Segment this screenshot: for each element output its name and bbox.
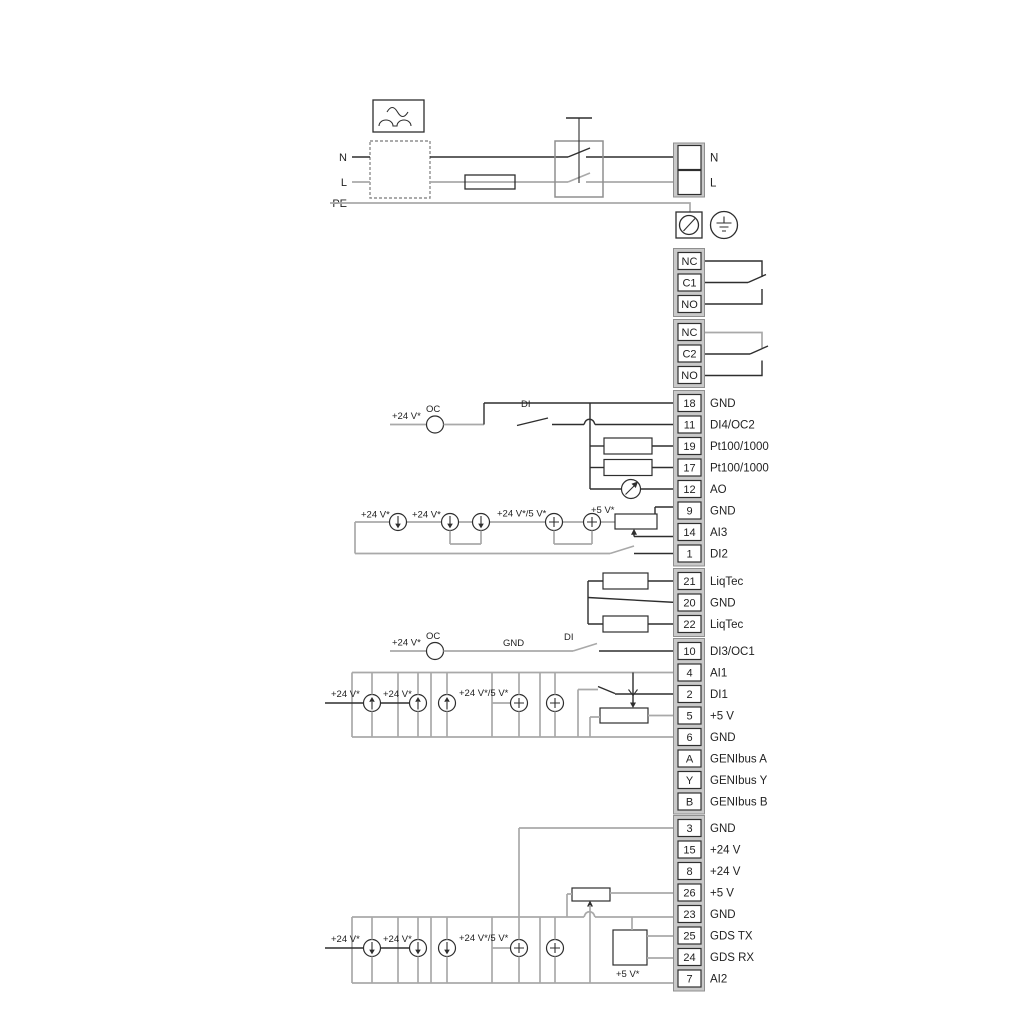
terminal-17-number: 17	[683, 462, 695, 474]
terminal-11-label: DI4/OC2	[710, 420, 755, 432]
terminal-1-label: DI2	[710, 549, 728, 561]
terminal-23-number: 23	[683, 909, 695, 921]
terminal-25-number: 25	[683, 930, 695, 942]
terminal-C2-number: C2	[682, 348, 696, 360]
terminal-10-number: 10	[683, 646, 695, 658]
terminal-8-label: +24 V	[710, 866, 741, 878]
io-block-1-terminal-block: 18GND11DI4/OC219Pt100/100017Pt100/100012…	[674, 391, 769, 567]
terminal-9-number: 9	[686, 505, 692, 517]
relay2-blade	[750, 346, 768, 354]
plus24-label: +24 V*	[383, 689, 412, 700]
plus24-5-label: +24 V*/5 V*	[497, 509, 547, 520]
relay-1-terminal-block: NCC1NO	[674, 249, 705, 317]
terminal-19-number: 19	[683, 441, 695, 453]
earth-icon	[711, 212, 738, 239]
terminal-2-label: DI1	[710, 689, 728, 701]
liqtec-resistor-1	[603, 573, 648, 589]
potentiometer	[572, 888, 610, 901]
terminal-26-number: 26	[683, 887, 695, 899]
l-label-left: L	[341, 177, 347, 189]
terminal-n	[678, 146, 701, 170]
di3-switch-blade	[573, 644, 597, 652]
io-block-3-terminal-block: 3GND15+24 V8+24 V26+5 V23GND25GDS TX24GD…	[674, 816, 755, 992]
plus5-label: +5 V*	[616, 969, 640, 980]
terminal-6-number: 6	[686, 732, 692, 744]
plus24-5-label: +24 V*/5 V*	[459, 688, 509, 699]
liqtec-wiring	[588, 573, 677, 632]
terminal-18-label: GND	[710, 398, 736, 410]
di-label: DI	[564, 632, 574, 643]
terminal-21-number: 21	[683, 576, 695, 588]
di1-switch-blade	[598, 687, 615, 694]
io-block-2-terminal-block: 10DI3/OC14AI12DI15+5 V6GNDAGENIbus AYGEN…	[674, 639, 768, 815]
relay-2-terminal-block: NCC2NO	[674, 320, 705, 388]
relay1-blade	[748, 275, 766, 283]
terminal-12-number: 12	[683, 484, 695, 496]
terminal-3-label: GND	[710, 823, 736, 835]
terminal-25-label: GDS TX	[710, 931, 753, 943]
plus24-label: +24 V*	[361, 510, 390, 521]
terminal-4-label: AI1	[710, 668, 727, 680]
plus24-5-label: +24 V*/5 V*	[459, 933, 509, 944]
terminal-NO-number: NO	[681, 370, 698, 382]
di2-switch-blade	[610, 546, 634, 554]
terminal-B-number: B	[686, 796, 693, 808]
terminal-24-number: 24	[683, 952, 695, 964]
wiring-diagram-page: N L PE N L	[0, 0, 1024, 1024]
ai1-sensor-cluster: +24 V* +24 V* +24 V*/5 V*	[325, 673, 677, 738]
terminal-15-label: +24 V	[710, 845, 741, 857]
potentiometer	[615, 514, 657, 529]
terminal-1-number: 1	[686, 548, 692, 560]
pt100-resistor-1	[604, 438, 652, 454]
relay2-contact-wiring	[704, 333, 768, 376]
oc-label: OC	[426, 631, 440, 642]
terminal-26-label: +5 V	[710, 888, 734, 900]
terminal-B-label: GENIbus B	[710, 797, 768, 809]
liqtec-resistor-2	[603, 616, 648, 632]
terminal-l	[678, 171, 701, 195]
mains-terminal-block: N L	[674, 143, 719, 197]
terminal-12-label: AO	[710, 484, 727, 496]
voltage-sensor-icon	[511, 695, 564, 712]
terminal-20-label: GND	[710, 598, 736, 610]
terminal-column: NCC1NONCC2NO18GND11DI4/OC219Pt100/100017…	[674, 249, 769, 992]
pe-label: PE	[332, 198, 347, 210]
terminal-A-label: GENIbus A	[710, 754, 767, 766]
di4-switch-blade	[517, 418, 548, 426]
terminal-20-number: 20	[683, 597, 695, 609]
relay1-contact-wiring	[704, 261, 766, 304]
ai3-sensor-cluster: +24 V* +24 V* +24 V*/5 V* +5 V*	[355, 505, 677, 554]
terminal-6-label: GND	[710, 732, 736, 744]
n-label-right: N	[710, 153, 718, 165]
terminal-NC-number: NC	[682, 327, 698, 339]
terminal-22-label: LiqTec	[710, 619, 743, 631]
n-label-left: N	[339, 152, 347, 164]
di3-oc1-wiring: +24 V* OC GND DI	[390, 631, 677, 660]
terminal-14-number: 14	[683, 527, 695, 539]
terminal-17-label: Pt100/1000	[710, 463, 769, 475]
terminal-18-number: 18	[683, 398, 695, 410]
open-collector-icon	[427, 643, 444, 660]
plus24-label: +24 V*	[383, 934, 412, 945]
terminal-11-number: 11	[684, 419, 695, 431]
power-section: N L PE N L	[330, 100, 738, 239]
gnd-label: GND	[503, 638, 524, 649]
terminal-A-number: A	[686, 753, 694, 765]
plus24-label: +24 V*	[331, 934, 360, 945]
terminal-NC-number: NC	[682, 256, 698, 268]
plus24-label: +24 V*	[392, 638, 421, 649]
wiring-diagram: N L PE N L	[0, 0, 1024, 1024]
terminal-5-label: +5 V	[710, 711, 734, 723]
pe-screw-terminal	[676, 212, 702, 238]
l-label-right: L	[710, 178, 717, 190]
terminal-10-label: DI3/OC1	[710, 646, 755, 658]
terminal-14-label: AI3	[710, 527, 727, 539]
terminal-Y-label: GENIbus Y	[710, 775, 768, 787]
plus24-label: +24 V*	[412, 510, 441, 521]
supply-filter-box	[370, 141, 430, 198]
plus24-label: +24 V*	[392, 411, 421, 422]
terminal-9-label: GND	[710, 506, 736, 518]
terminal-Y-number: Y	[686, 775, 694, 787]
voltage-sensor-icon	[511, 940, 564, 957]
terminal-7-number: 7	[686, 973, 692, 985]
terminal-2-number: 2	[686, 689, 692, 701]
terminal-4-number: 4	[686, 667, 692, 679]
terminal-NO-number: NO	[681, 299, 698, 311]
terminal-5-number: 5	[686, 710, 692, 722]
terminal-3-number: 3	[686, 823, 692, 835]
pt100-resistor-2	[604, 460, 652, 476]
terminal-22-number: 22	[683, 619, 695, 631]
terminal-19-label: Pt100/1000	[710, 441, 769, 453]
plus24-label: +24 V*	[331, 689, 360, 700]
sine-filter-icon	[373, 100, 424, 132]
liqtec-block-terminal-block: 21LiqTec20GND22LiqTec	[674, 569, 744, 637]
potentiometer	[600, 708, 648, 723]
terminal-8-number: 8	[686, 866, 692, 878]
terminal-15-number: 15	[683, 844, 695, 856]
terminal-7-label: AI2	[710, 974, 727, 986]
terminal-C1-number: C1	[682, 277, 696, 289]
gds-sensor-box	[613, 930, 647, 965]
oc-label: OC	[426, 404, 440, 415]
terminal-23-label: GND	[710, 909, 736, 921]
ai2-gds-sensor-cluster: +24 V* +24 V* +24 V*/5 V* +5 V*	[325, 828, 677, 983]
terminal-24-label: GDS RX	[710, 952, 754, 964]
di4-pt100-ao-wiring: +24 V* OC DI	[390, 399, 677, 499]
di-label: DI	[521, 399, 531, 410]
open-collector-icon	[427, 416, 444, 433]
terminal-21-label: LiqTec	[710, 576, 743, 588]
